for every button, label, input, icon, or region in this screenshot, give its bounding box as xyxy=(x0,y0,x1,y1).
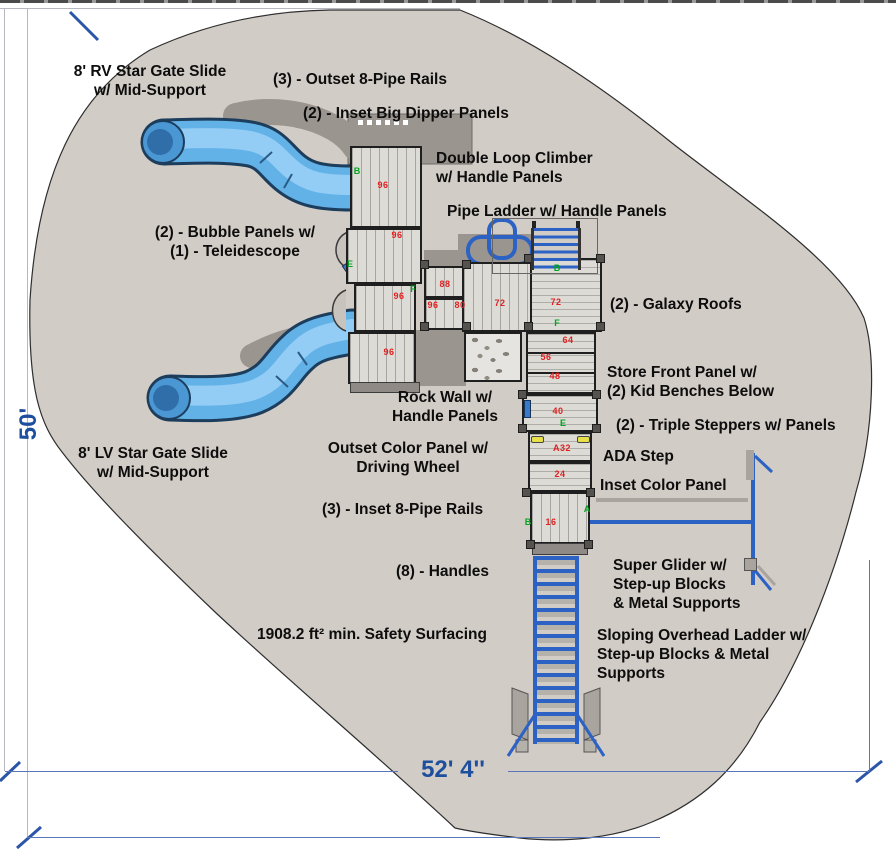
corner-post xyxy=(518,424,527,433)
deck-96-second xyxy=(346,228,422,284)
corner-post xyxy=(420,322,429,331)
corner-post xyxy=(592,390,601,399)
pipe-ladder-rungs xyxy=(531,228,581,270)
yellow-handle xyxy=(577,436,590,443)
center-connector-shadow xyxy=(416,330,466,386)
width-dimension-line-right xyxy=(508,771,869,772)
deck-16-tread xyxy=(532,543,588,555)
plan-artwork xyxy=(0,0,896,849)
height-dimension-label: 50' xyxy=(15,389,43,459)
corner-post xyxy=(596,254,605,263)
corner-post xyxy=(596,322,605,331)
playground-plan-drawing: 8' RV Star Gate Slidew/ Mid-Support(3) -… xyxy=(0,0,896,849)
corner-post xyxy=(524,322,533,331)
deck-24 xyxy=(528,462,592,492)
corner-post xyxy=(420,260,429,269)
width-dimension-label: 52' 4'' xyxy=(398,756,508,784)
color-panel xyxy=(524,400,531,418)
deck-96-lower-left xyxy=(348,332,416,384)
corner-post xyxy=(518,390,527,399)
width-dimension-line-left xyxy=(5,771,398,772)
deck-40 xyxy=(522,394,598,432)
corner-post xyxy=(592,424,601,433)
triple-stepper-decks xyxy=(526,332,596,394)
corner-post xyxy=(462,260,471,269)
deck-96-third xyxy=(354,284,416,332)
yellow-handle xyxy=(531,436,544,443)
top-window-edge xyxy=(0,0,896,3)
corner-post xyxy=(586,488,595,497)
corner-post xyxy=(522,488,531,497)
roof-dashed-edge xyxy=(358,120,412,125)
glider-post-base xyxy=(744,558,757,571)
rock-wall-panel xyxy=(464,332,522,382)
corner-post xyxy=(462,322,471,331)
glider-gray-rail xyxy=(596,498,748,502)
bottom-extension-line xyxy=(27,837,660,838)
deck-16 xyxy=(530,492,590,544)
corner-post xyxy=(526,540,535,549)
glider-post-top xyxy=(746,450,754,480)
sloping-overhead-ladder-shape xyxy=(533,556,579,744)
right-extension-line xyxy=(869,560,870,771)
lower-left-tread xyxy=(350,382,420,393)
corner-post xyxy=(584,540,593,549)
glider-blue-rail xyxy=(590,520,753,524)
deck-96-top-tower xyxy=(350,146,422,228)
